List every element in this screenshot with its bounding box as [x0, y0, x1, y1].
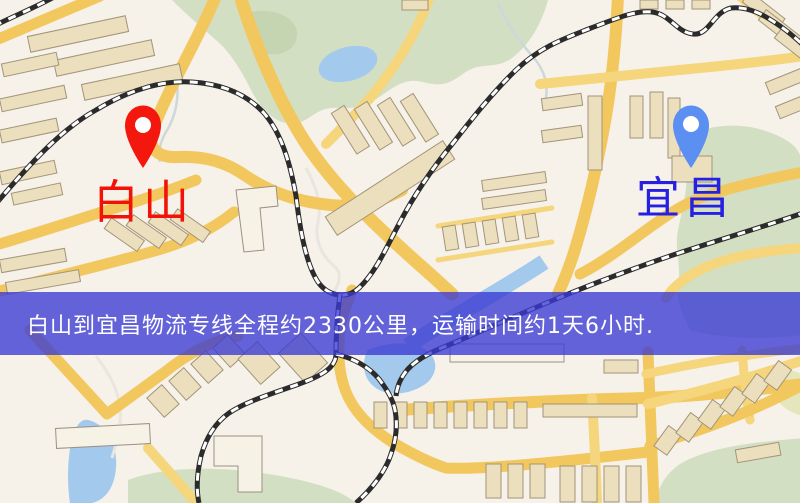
route-info-text: 白山到宜昌物流专线全程约2330公里，运输时间约1天6小时. [27, 308, 654, 340]
destination-pin-shape [673, 106, 709, 169]
map-image: 白山 宜昌 白山到宜昌物流专线全程约2330公里，运输时间约1天6小时. [0, 0, 800, 503]
basemap [0, 0, 800, 503]
origin-pin-hole [135, 117, 151, 133]
destination-pin-icon [670, 103, 712, 169]
origin-pin-shape [125, 106, 161, 169]
destination-pin-hole [683, 116, 699, 132]
origin-pin-icon [122, 103, 164, 169]
destination-label: 宜昌 [636, 177, 734, 221]
origin-label: 白山 [93, 179, 193, 225]
route-info-banner: 白山到宜昌物流专线全程约2330公里，运输时间约1天6小时. [0, 292, 800, 355]
